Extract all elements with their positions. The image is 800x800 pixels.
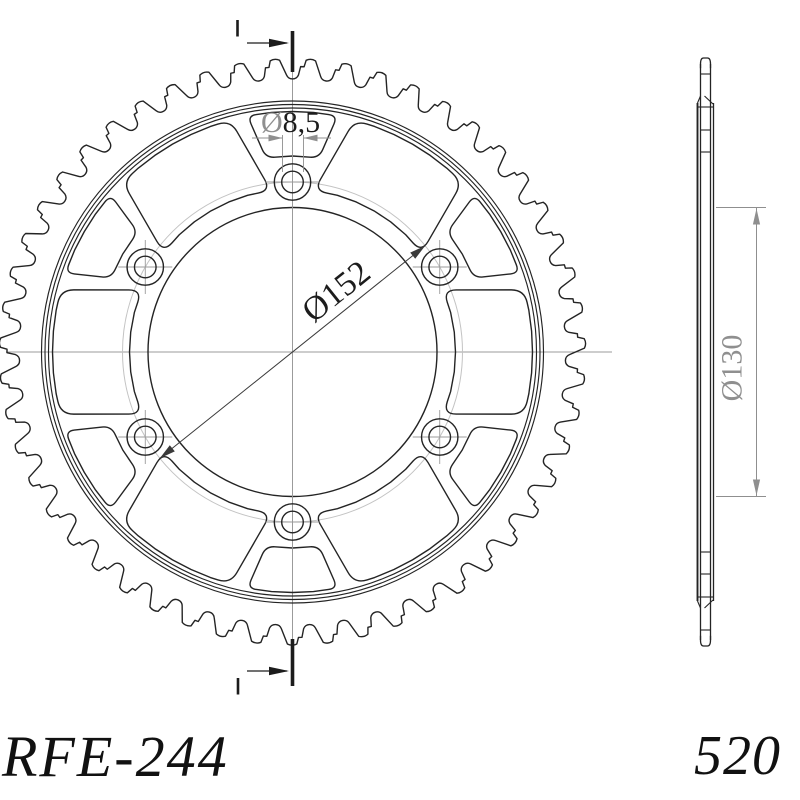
- part-number-label: RFE-244: [2, 723, 229, 790]
- section-marker-bottom: [238, 639, 293, 695]
- bolt-hole: [266, 155, 320, 209]
- section-marker-top: [238, 20, 293, 72]
- large-window: [127, 457, 267, 581]
- small-window: [68, 427, 135, 506]
- small-window: [68, 198, 135, 277]
- dimension-bolt-hole: Ø8,5: [252, 106, 331, 172]
- bolt-hole: [266, 495, 320, 549]
- dim-inner-bore-text: Ø130: [716, 335, 749, 402]
- dim-bolt-circle-text: Ø152: [295, 254, 377, 330]
- side-view: [698, 58, 714, 646]
- small-window: [450, 427, 517, 506]
- drawing-svg: Ø152Ø8,5Ø130: [0, 0, 800, 800]
- large-window: [318, 457, 458, 581]
- small-window: [450, 198, 517, 277]
- dimension-inner-bore: Ø130: [716, 208, 767, 497]
- large-window: [127, 123, 267, 247]
- centerlines: [6, 70, 612, 640]
- sprocket-technical-drawing: Ø152Ø8,5Ø130 RFE-244 520: [0, 0, 800, 800]
- chain-pitch-label: 520: [694, 724, 781, 788]
- dim-bolt-hole-text: Ø8,5: [261, 106, 320, 139]
- large-window: [318, 123, 458, 247]
